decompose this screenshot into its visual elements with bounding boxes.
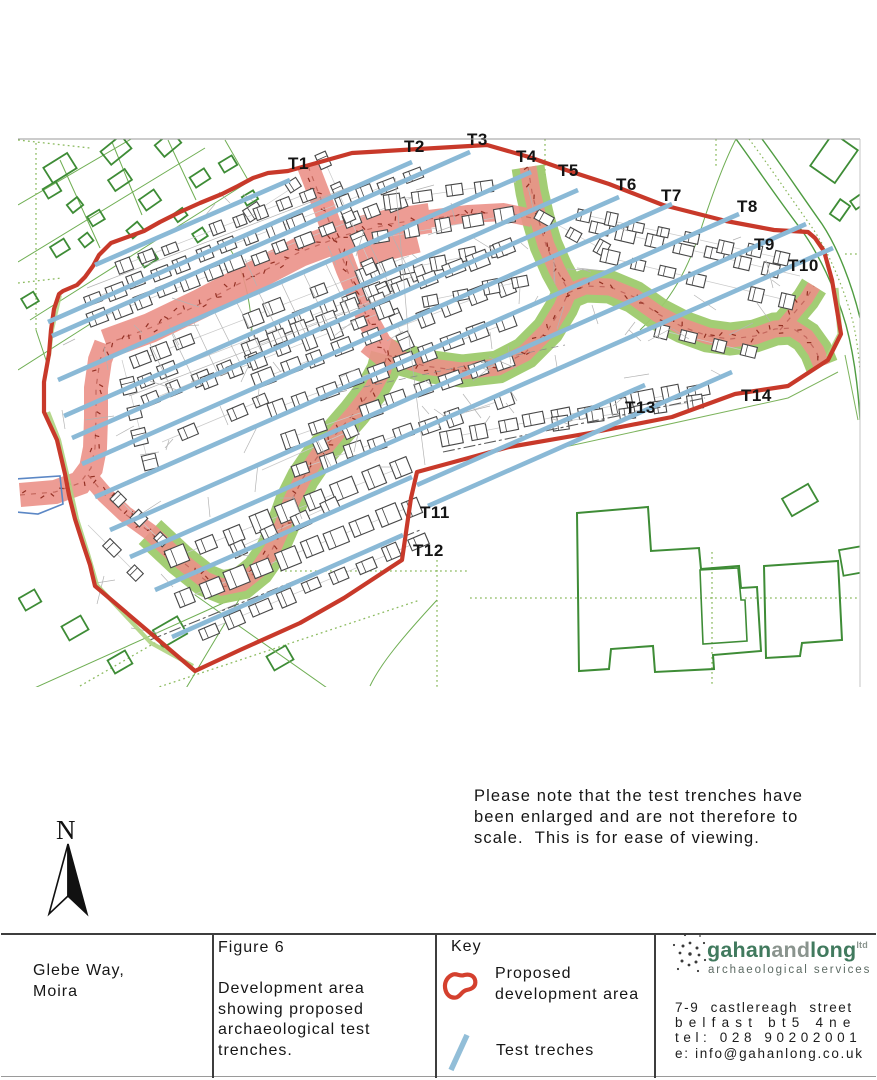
svg-text:T4: T4 [516, 147, 537, 166]
svg-text:T12: T12 [413, 541, 444, 560]
svg-text:T11: T11 [420, 503, 450, 522]
svg-text:T2: T2 [404, 137, 425, 156]
svg-text:T6: T6 [616, 175, 637, 194]
svg-text:T10: T10 [788, 256, 819, 275]
svg-text:T9: T9 [754, 235, 775, 254]
svg-text:T13: T13 [625, 398, 656, 417]
svg-text:T14: T14 [741, 386, 772, 405]
svg-text:T5: T5 [558, 161, 579, 180]
svg-text:T7: T7 [661, 186, 682, 205]
svg-text:N: N [56, 815, 76, 845]
svg-text:T8: T8 [737, 197, 758, 216]
svg-text:T1: T1 [288, 154, 309, 173]
